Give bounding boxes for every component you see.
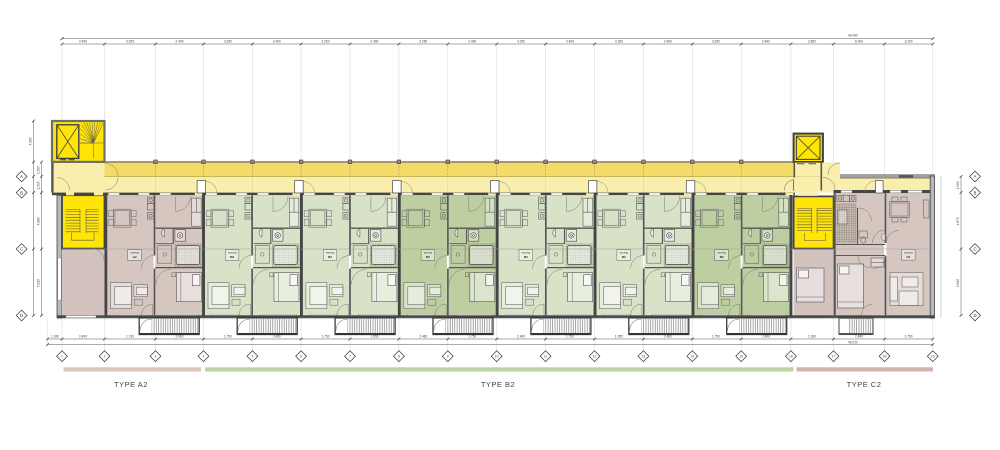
svg-text:2.850: 2.850 [808, 40, 816, 44]
svg-text:2.460: 2.460 [176, 335, 184, 339]
svg-text:3.250: 3.250 [712, 40, 720, 44]
svg-text:D: D [973, 313, 976, 318]
svg-text:13: 13 [642, 355, 646, 359]
svg-text:11: 11 [544, 355, 548, 359]
svg-text:2.490: 2.490 [370, 40, 378, 44]
svg-text:3.250: 3.250 [615, 40, 623, 44]
svg-text:1.750: 1.750 [566, 335, 574, 339]
svg-text:19: 19 [931, 355, 935, 359]
svg-text:15: 15 [739, 355, 743, 359]
svg-text:TYPE C2: TYPE C2 [847, 380, 882, 389]
svg-text:7: 7 [349, 355, 351, 359]
svg-text:2.490: 2.490 [664, 40, 672, 44]
svg-text:1.750: 1.750 [468, 335, 476, 339]
svg-text:5.815: 5.815 [37, 279, 41, 287]
svg-text:1.955: 1.955 [370, 335, 378, 339]
svg-text:B2: B2 [720, 255, 724, 259]
svg-text:2.460: 2.460 [664, 335, 672, 339]
svg-text:B2: B2 [622, 255, 626, 259]
svg-text:B2: B2 [230, 255, 234, 259]
svg-text:1.180: 1.180 [51, 335, 59, 339]
svg-text:3: 3 [155, 355, 157, 359]
svg-text:2.490: 2.490 [79, 335, 87, 339]
svg-text:2.490: 2.490 [468, 40, 476, 44]
svg-text:5.815: 5.815 [956, 279, 960, 287]
svg-text:45.020: 45.020 [848, 340, 858, 344]
svg-text:1.505: 1.505 [956, 181, 960, 189]
svg-text:2.490: 2.490 [273, 40, 281, 44]
svg-text:2.490: 2.490 [566, 40, 574, 44]
svg-text:1.750: 1.750 [905, 335, 913, 339]
svg-text:4: 4 [203, 355, 205, 359]
svg-text:1.750: 1.750 [322, 335, 330, 339]
svg-text:6: 6 [300, 355, 302, 359]
svg-text:8: 8 [398, 355, 400, 359]
svg-text:2.480: 2.480 [855, 335, 863, 339]
svg-text:TYPE B2: TYPE B2 [481, 380, 515, 389]
svg-text:C2: C2 [906, 255, 910, 259]
svg-text:2.490: 2.490 [79, 40, 87, 44]
svg-text:A: A [20, 174, 23, 179]
svg-text:16: 16 [789, 355, 793, 359]
svg-text:3.250: 3.250 [224, 40, 232, 44]
svg-text:1.750: 1.750 [712, 335, 720, 339]
svg-text:2.460: 2.460 [273, 335, 281, 339]
svg-text:B: B [20, 190, 23, 195]
svg-text:A: A [974, 174, 977, 179]
svg-text:2.460: 2.460 [517, 335, 525, 339]
svg-text:TYPE A2: TYPE A2 [114, 380, 148, 389]
svg-text:10: 10 [495, 355, 499, 359]
svg-text:14: 14 [690, 355, 694, 359]
svg-text:1.955: 1.955 [615, 335, 623, 339]
svg-text:1.505: 1.505 [37, 166, 41, 174]
svg-text:1.180: 1.180 [808, 335, 816, 339]
svg-text:4.880: 4.880 [37, 217, 41, 225]
svg-text:46.080: 46.080 [848, 34, 858, 38]
svg-text:17: 17 [832, 355, 836, 359]
svg-text:2.460: 2.460 [762, 335, 770, 339]
svg-text:1.730: 1.730 [126, 335, 134, 339]
svg-text:18: 18 [883, 355, 887, 359]
svg-text:B2: B2 [328, 255, 332, 259]
svg-text:2.490: 2.490 [176, 40, 184, 44]
svg-text:4.080: 4.080 [29, 137, 33, 145]
svg-text:5: 5 [251, 355, 253, 359]
svg-text:1.750: 1.750 [224, 335, 232, 339]
svg-text:3.250: 3.250 [322, 40, 330, 44]
svg-text:5.000: 5.000 [855, 40, 863, 44]
svg-text:4.875: 4.875 [956, 217, 960, 225]
svg-text:12: 12 [593, 355, 597, 359]
svg-text:2: 2 [104, 355, 106, 359]
svg-text:1.505: 1.505 [37, 181, 41, 189]
svg-text:B2: B2 [426, 255, 430, 259]
svg-text:3.250: 3.250 [517, 40, 525, 44]
svg-text:2.460: 2.460 [419, 335, 427, 339]
svg-text:A2: A2 [133, 255, 137, 259]
svg-text:2.490: 2.490 [762, 40, 770, 44]
svg-text:3.200: 3.200 [905, 40, 913, 44]
svg-text:3.250: 3.250 [419, 40, 427, 44]
svg-text:D: D [20, 313, 23, 318]
svg-text:3.250: 3.250 [126, 40, 134, 44]
svg-text:B: B [974, 190, 977, 195]
svg-text:C: C [973, 247, 976, 252]
svg-text:1: 1 [61, 355, 63, 359]
svg-text:C: C [20, 247, 23, 252]
svg-text:B2: B2 [524, 255, 528, 259]
svg-text:9: 9 [447, 355, 449, 359]
